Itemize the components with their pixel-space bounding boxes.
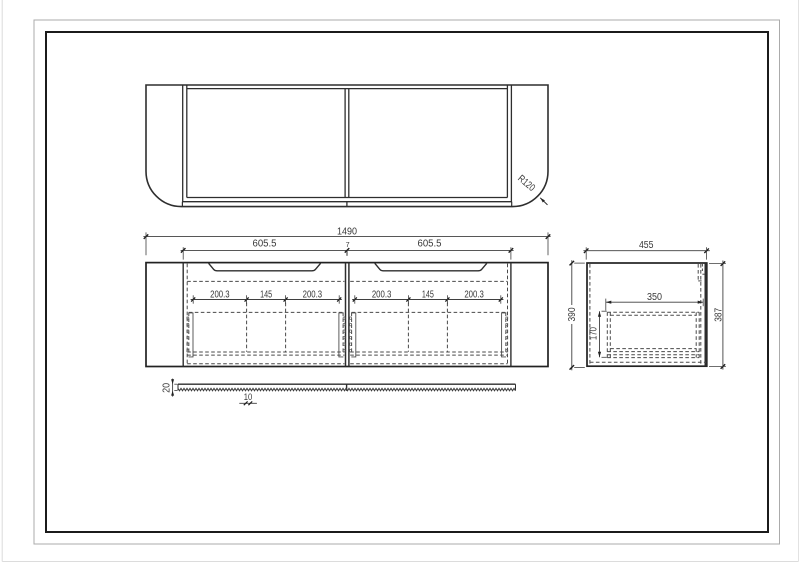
- svg-text:200.3: 200.3: [464, 290, 484, 301]
- svg-text:10: 10: [244, 392, 253, 402]
- svg-text:145: 145: [260, 290, 272, 301]
- svg-text:170: 170: [589, 327, 600, 340]
- svg-text:350: 350: [647, 292, 662, 303]
- svg-text:1490: 1490: [337, 227, 357, 238]
- svg-text:20: 20: [161, 383, 172, 393]
- svg-text:200.3: 200.3: [210, 290, 230, 301]
- svg-text:455: 455: [639, 240, 654, 251]
- svg-text:387: 387: [713, 307, 724, 321]
- svg-text:605.5: 605.5: [418, 238, 442, 249]
- svg-text:605.5: 605.5: [253, 238, 277, 249]
- svg-text:145: 145: [422, 290, 434, 301]
- svg-text:7: 7: [346, 240, 350, 249]
- svg-text:R120: R120: [515, 173, 537, 194]
- svg-text:200.3: 200.3: [372, 290, 392, 301]
- svg-text:200.3: 200.3: [303, 290, 323, 301]
- svg-text:390: 390: [567, 307, 578, 321]
